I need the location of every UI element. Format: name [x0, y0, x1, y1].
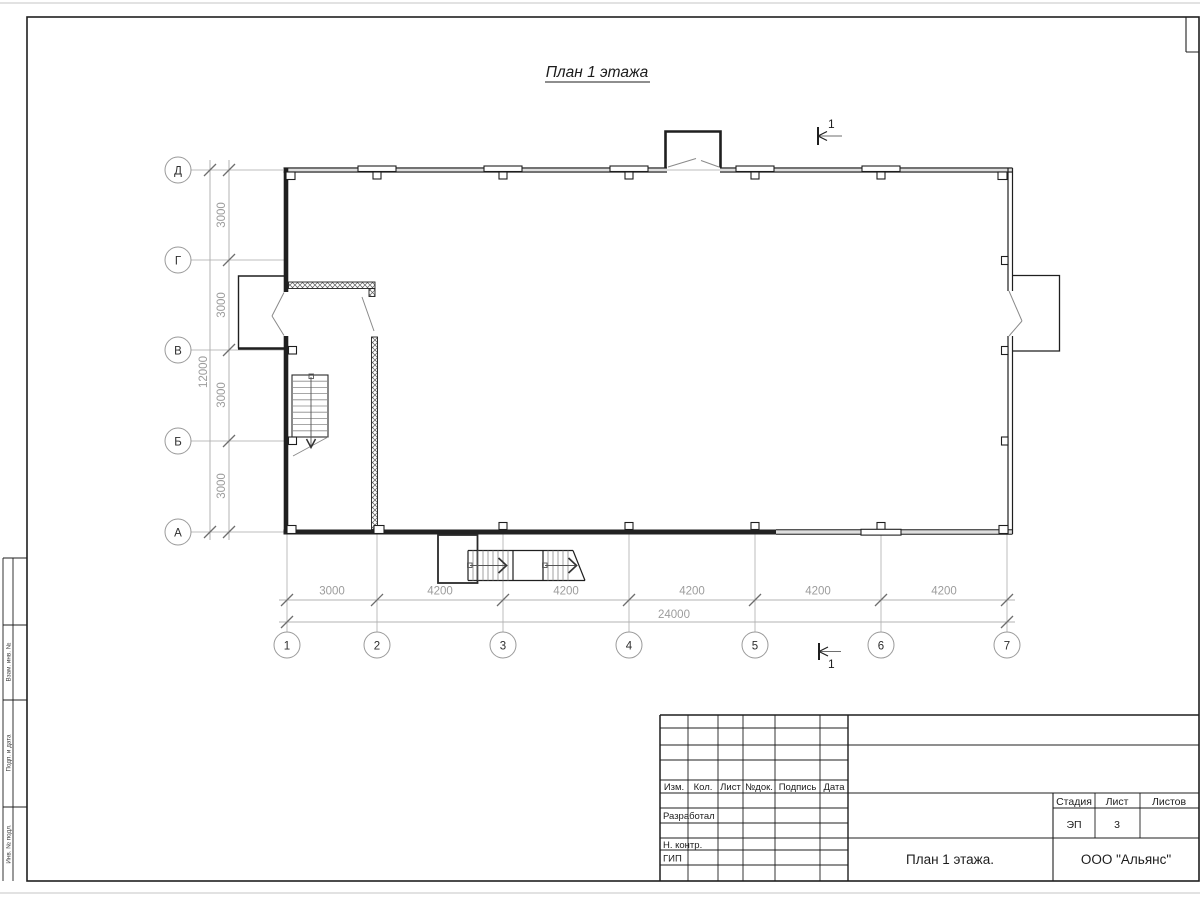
axis-label: А — [174, 528, 182, 540]
section-mark-top: 1 — [818, 117, 842, 145]
rev-header: Кол. — [694, 782, 713, 793]
company-name: ООО "Альянс" — [1081, 852, 1171, 867]
dim-label: 4200 — [931, 586, 957, 598]
section-label: 1 — [828, 117, 835, 131]
axis-label: Д — [174, 166, 182, 178]
entrance-porch — [438, 535, 478, 583]
axis-label: 2 — [374, 641, 380, 653]
sheet-number: 3 — [1114, 819, 1120, 831]
dim-label: 3000 — [216, 292, 228, 318]
grid-axis-lines — [191, 170, 1012, 632]
role-label: ГИП — [663, 854, 682, 865]
axis-label: 3 — [500, 641, 506, 653]
axis-label: 4 — [626, 641, 633, 653]
sheets-label: Листов — [1152, 796, 1187, 808]
row-axis-bubbles: Д Г В Б А — [165, 157, 191, 545]
right-door-leaves — [1009, 291, 1022, 336]
entrance-vestibule — [666, 132, 721, 168]
vestibule-door-leaves — [668, 159, 719, 168]
dim-label: 4200 — [679, 586, 705, 598]
rev-header: Подпись — [779, 782, 817, 793]
dim-label: 3000 — [319, 586, 345, 598]
stage-value: ЭП — [1066, 819, 1081, 831]
wall-pilasters — [286, 166, 1008, 535]
axis-label: 6 — [878, 641, 884, 653]
hatched-wall-vertical — [372, 337, 378, 530]
rev-header: Дата — [823, 782, 845, 793]
hatched-wall-end — [369, 289, 375, 297]
section-mark-bottom: 1 — [819, 643, 841, 671]
sheet-label: Лист — [1106, 796, 1129, 808]
margin-label: Инв. № подл. — [6, 824, 13, 863]
exterior-walls — [284, 168, 1013, 535]
margin-column: Взам. инв. № Подп. и дата Инв. № подл. — [3, 558, 27, 881]
axis-label: 7 — [1004, 641, 1010, 653]
axis-label: 5 — [752, 641, 758, 653]
drawing-title: План 1 этажа — [545, 64, 650, 82]
axis-label: В — [174, 346, 182, 358]
drawing-sheet: Взам. инв. № Подп. и дата Инв. № подл. П… — [0, 0, 1200, 900]
floor-plan-drawing: Взам. инв. № Подп. и дата Инв. № подл. П… — [0, 0, 1200, 900]
left-door-leaves — [272, 293, 284, 336]
margin-label: Подп. и дата — [6, 734, 13, 772]
stair-treads — [292, 381, 328, 431]
column-axis-bubbles: 1 2 3 4 5 6 7 — [274, 632, 1020, 658]
left-porch — [238, 276, 285, 349]
axis-label: Г — [175, 256, 182, 268]
dim-label: 4200 — [805, 586, 831, 598]
dim-label: 3000 — [216, 202, 228, 228]
role-label: Разработал — [663, 811, 715, 822]
sheet-frame — [27, 17, 1199, 881]
doc-title: План 1 этажа. — [906, 852, 994, 867]
dim-label: 4200 — [553, 586, 579, 598]
door-swings — [272, 291, 1022, 336]
title-block: Изм. Кол. Лист №док. Подпись Дата Разраб… — [660, 715, 1199, 881]
dim-label: 4200 — [427, 586, 453, 598]
inner-door-leaf — [362, 297, 374, 331]
dim-total-label: 12000 — [198, 356, 210, 388]
page-title: План 1 этажа — [546, 64, 649, 81]
dimension-labels: 3000 3000 3000 3000 12000 3000 4200 4200… — [198, 202, 957, 621]
dimension-ticks — [204, 164, 1013, 628]
stage-label: Стадия — [1056, 796, 1092, 808]
dim-label: 3000 — [216, 473, 228, 499]
dim-total-label: 24000 — [658, 609, 690, 621]
dim-label: 3000 — [216, 382, 228, 408]
rev-header: №док. — [745, 782, 773, 793]
margin-label: Взам. инв. № — [6, 642, 13, 681]
internal-stairs — [292, 374, 328, 456]
rev-header: Изм. — [664, 782, 684, 793]
frame-corner-box — [1186, 17, 1199, 52]
external-stairs — [438, 535, 585, 583]
role-label: Н. контр. — [663, 840, 702, 851]
axis-label: 1 — [284, 641, 290, 653]
rev-header: Лист — [720, 782, 741, 793]
axis-label: Б — [174, 437, 182, 449]
section-label: 1 — [828, 657, 835, 671]
hatched-wall-horizontal — [289, 282, 376, 289]
